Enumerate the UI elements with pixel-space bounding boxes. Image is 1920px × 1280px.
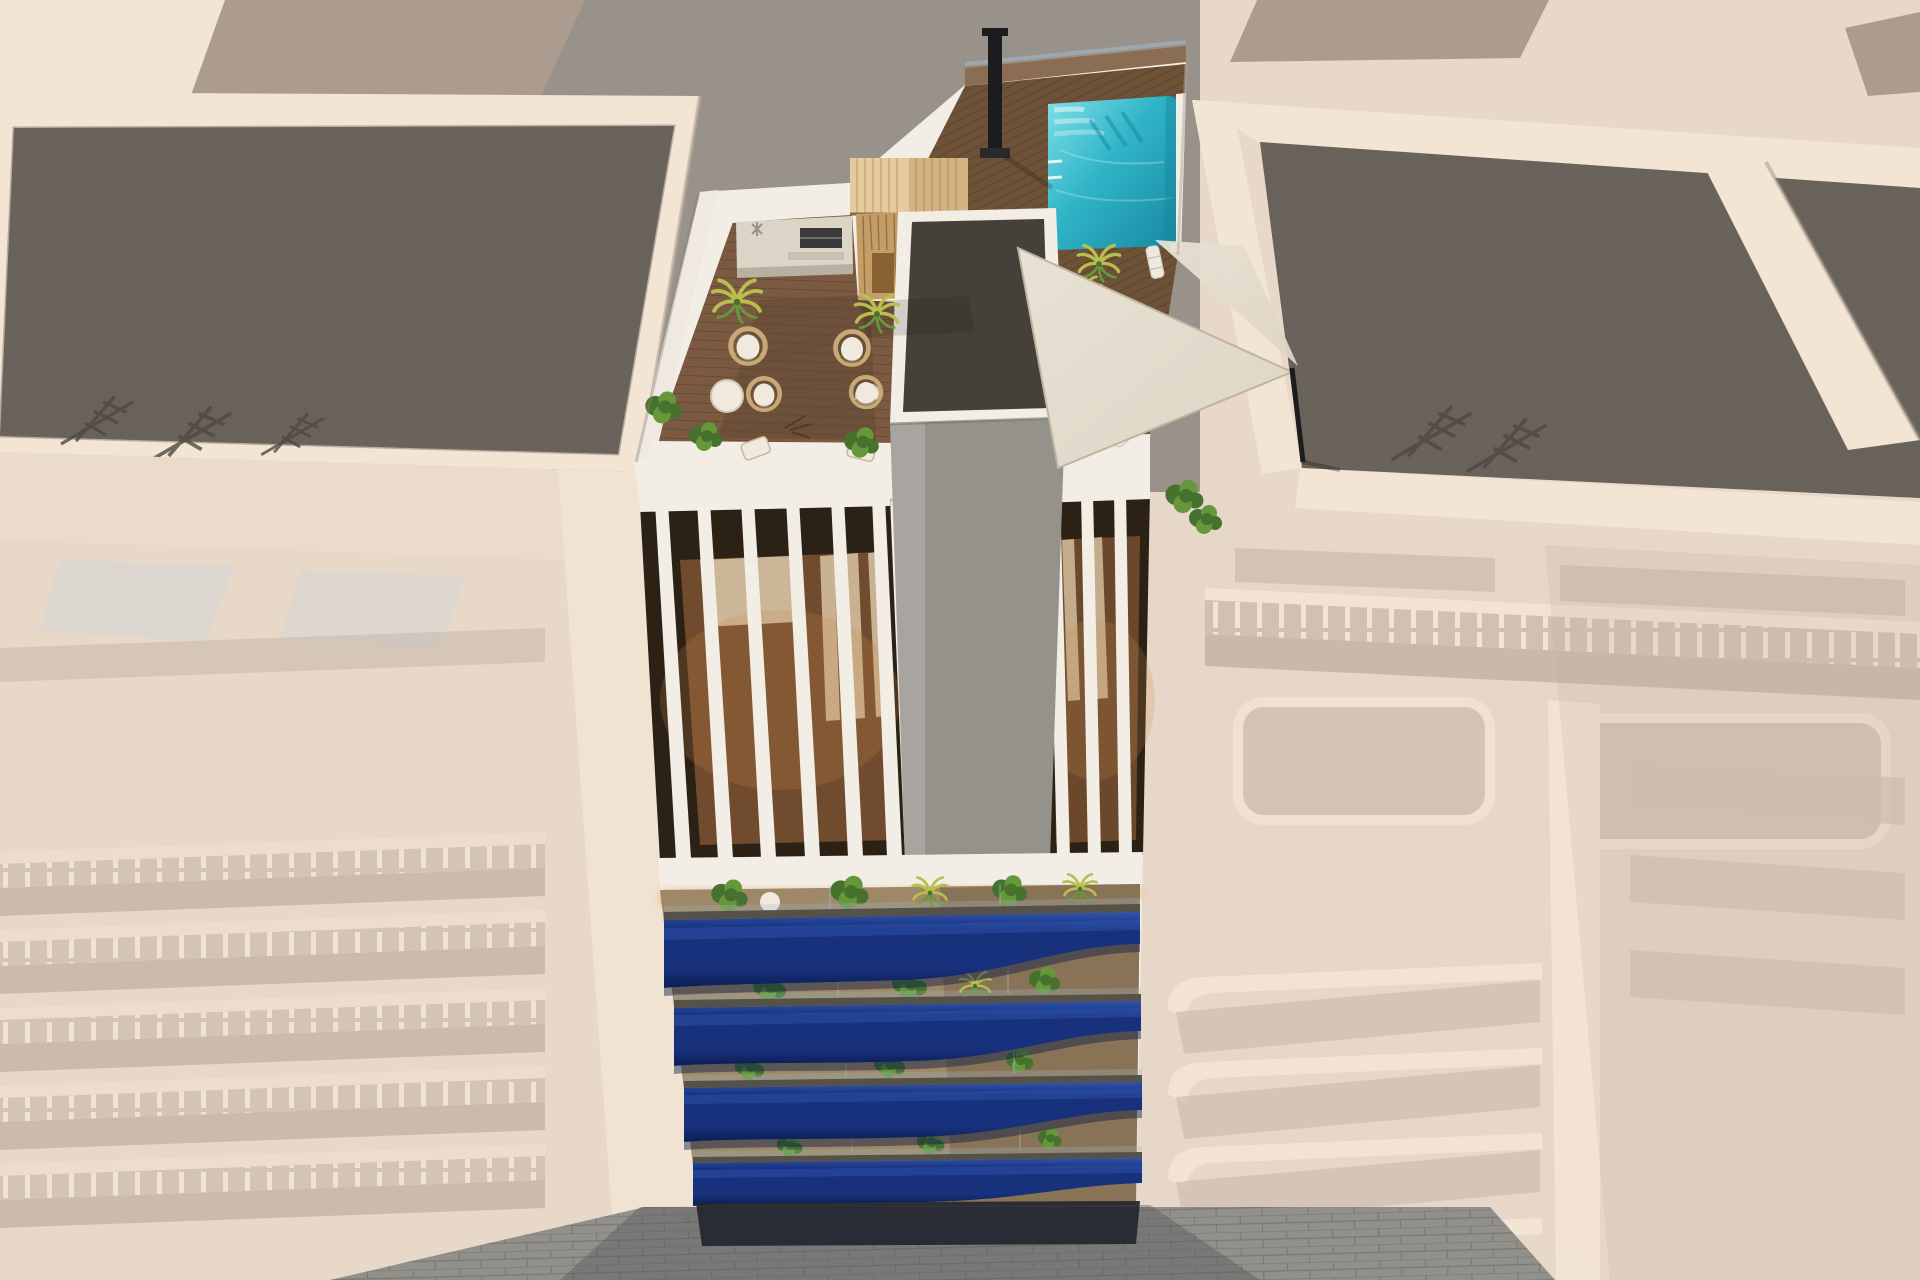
swimming-pool: [1048, 96, 1176, 250]
ne-shadow-wall: [1230, 0, 1549, 62]
render-stage: Aerial render of a residential apartment…: [0, 0, 1920, 1280]
core-wall-front: [925, 418, 1065, 861]
coffee-table: [711, 380, 743, 412]
sauna-door: [872, 253, 894, 293]
east-wash-overlay: [1140, 520, 1920, 1280]
architectural-render: Aerial render of a residential apartment…: [0, 0, 1920, 1280]
neighbor-building-west: [0, 452, 701, 1280]
pool-steps: [1054, 109, 1084, 110]
nw-shadow-wall: [190, 0, 585, 98]
neighbor-building-east: [1140, 520, 1920, 1280]
nw-gravel-roof: [0, 126, 674, 454]
nw-roof-walkway: [0, 0, 225, 98]
pergola: [850, 158, 968, 214]
ground-floor-shadow: [696, 1201, 1140, 1246]
outdoor-kitchen-counter: [736, 216, 853, 278]
west-wash-overlay: [0, 452, 701, 1280]
